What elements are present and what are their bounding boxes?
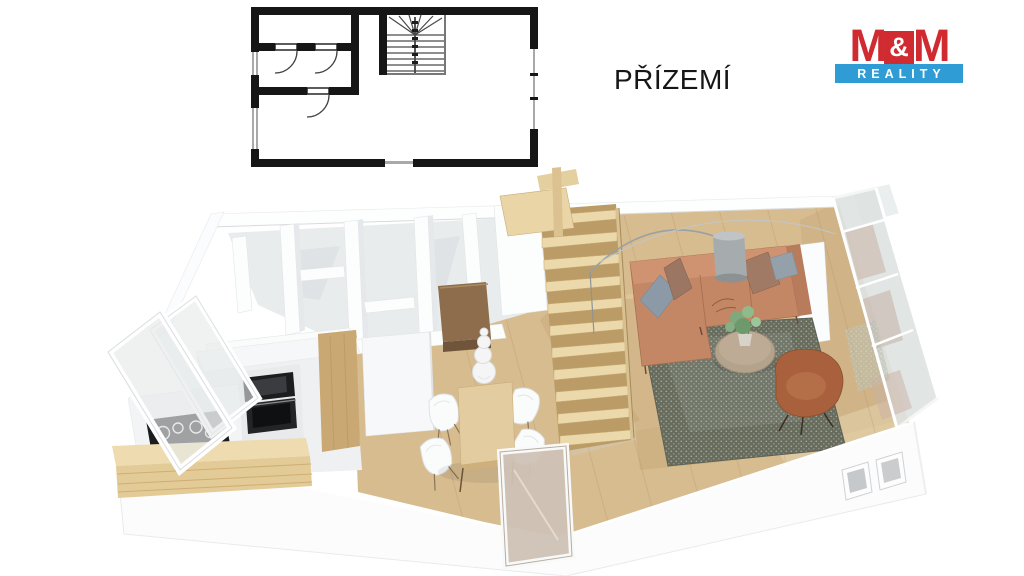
kitchen-wood-cabinet <box>318 330 360 452</box>
kitchen-tall-cabinet <box>362 332 434 436</box>
plan-windows <box>251 49 538 164</box>
real-estate-floorplan-page: PŘÍZEMÍ M & M REALITY <box>0 0 1024 576</box>
scene-svg <box>0 0 1024 576</box>
plan-inner-walls <box>259 15 387 95</box>
logo-letter-m1: M <box>850 27 886 64</box>
entrance-glass-panel <box>500 446 572 566</box>
logo-top-row: M & M <box>835 24 963 64</box>
mm-reality-logo: M & M REALITY <box>835 24 963 83</box>
logo-letter-m2: M <box>913 27 949 64</box>
render-3d <box>108 167 950 576</box>
logo-ampersand: & <box>884 31 914 64</box>
floor-title: PŘÍZEMÍ <box>614 64 731 96</box>
stair-landing <box>500 167 579 237</box>
floorplan-2d <box>251 7 538 167</box>
plan-doors <box>275 44 337 117</box>
plan-stairs <box>387 15 446 75</box>
